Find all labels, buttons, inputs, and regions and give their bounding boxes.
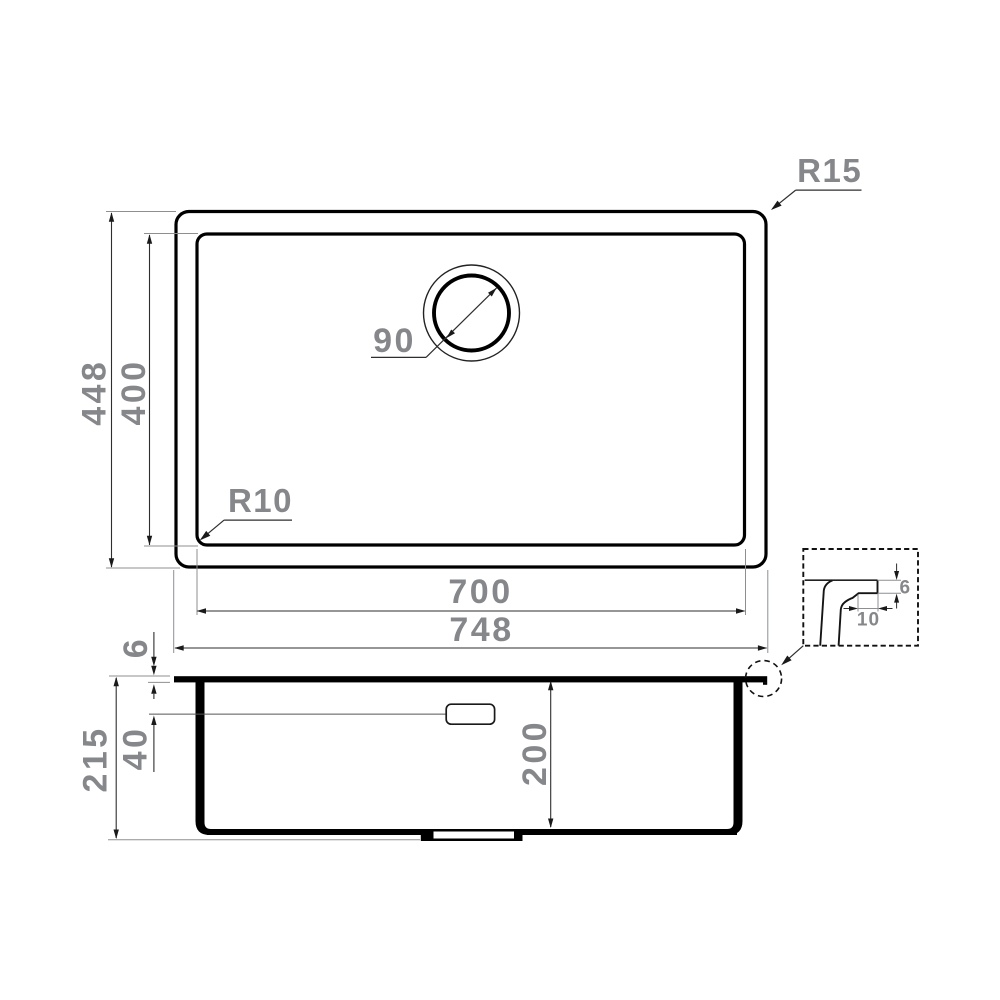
svg-text:6: 6 [117,637,155,658]
svg-text:10: 10 [857,610,880,631]
svg-text:R15: R15 [797,152,862,189]
svg-text:700: 700 [448,573,512,611]
svg-text:R10: R10 [228,482,293,519]
svg-text:6: 6 [900,578,912,599]
svg-text:40: 40 [117,726,155,771]
svg-text:90: 90 [373,322,416,360]
svg-text:448: 448 [76,359,114,426]
svg-text:215: 215 [77,726,115,793]
svg-text:400: 400 [115,359,153,426]
svg-text:200: 200 [516,719,554,786]
svg-text:748: 748 [449,611,513,649]
